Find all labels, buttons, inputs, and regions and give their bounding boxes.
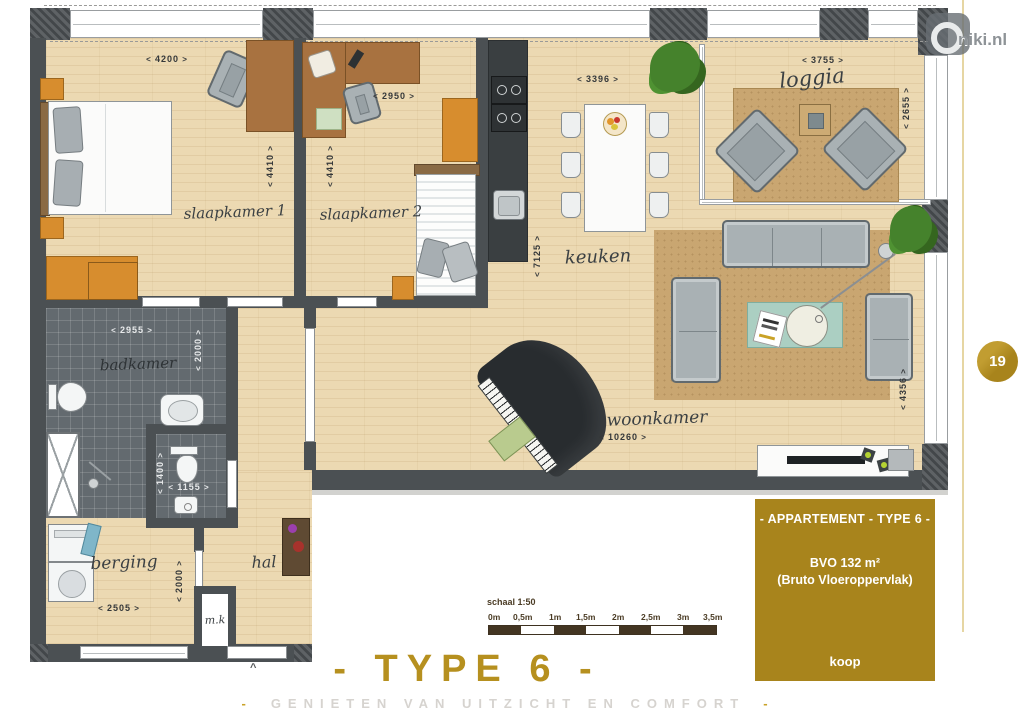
dryer bbox=[48, 562, 94, 602]
info-box-tenure: koop bbox=[755, 654, 935, 669]
dim-sl1-height: 4410 bbox=[265, 145, 275, 187]
dim-sl2-width: 2950 bbox=[373, 91, 415, 101]
nightstand bbox=[392, 276, 414, 300]
door-badkamer bbox=[142, 297, 200, 307]
tagline: -GENIETEN VAN UITZICHT EN COMFORT- bbox=[208, 696, 808, 711]
drum-door bbox=[58, 570, 86, 598]
facade-dashed-line-top bbox=[44, 5, 936, 6]
label-keuken: keuken bbox=[564, 245, 631, 268]
wall-pier-top-1 bbox=[263, 8, 313, 40]
window-top-loggia-1 bbox=[707, 10, 820, 38]
sofa-left bbox=[671, 277, 721, 383]
scale-bar: schaal 1:50 0m 0,5m 1m 1,5m 2m 2,5m 3m 3… bbox=[487, 597, 727, 637]
green-pad bbox=[316, 108, 342, 130]
scale-segment bbox=[489, 626, 521, 634]
scale-tick: 1,5m bbox=[576, 612, 595, 622]
round-coffee-table bbox=[786, 305, 828, 347]
kitchen-cooktop bbox=[491, 104, 527, 132]
scale-tick: 2,5m bbox=[641, 612, 660, 622]
scale-tick: 3,5m bbox=[703, 612, 722, 622]
window-top-slaapkamer2-keuken bbox=[313, 10, 650, 38]
window-right-woonkamer bbox=[924, 252, 948, 444]
scale-tick: 0m bbox=[488, 612, 500, 622]
cushion-divider bbox=[679, 331, 717, 332]
cushion-divider bbox=[772, 228, 773, 266]
arc-lamp-base bbox=[878, 243, 894, 259]
window-right-loggia bbox=[924, 55, 948, 200]
dim-badkamer-height: 2000 bbox=[193, 329, 203, 371]
niki-logo-text: niki.nl bbox=[958, 30, 1007, 50]
nightstand bbox=[40, 78, 64, 100]
dim-sl1-width: 4200 bbox=[146, 54, 188, 64]
tagline-text: GENIETEN VAN UITZICHT EN COMFORT bbox=[271, 696, 745, 711]
scale-bar-ticks: 0m 0,5m 1m 1,5m 2m 2,5m 3m 3,5m bbox=[487, 612, 727, 622]
pillow bbox=[52, 159, 83, 207]
entrance-door bbox=[227, 646, 287, 659]
basin bbox=[168, 400, 198, 422]
dim-loggia-width: 3755 bbox=[802, 55, 844, 65]
speaker-cone bbox=[864, 451, 872, 459]
burner-icon bbox=[497, 113, 507, 123]
dim-woonkamer-width: 10260 bbox=[599, 432, 647, 442]
info-box-title: - APPARTEMENT - TYPE 6 - bbox=[755, 512, 935, 526]
table-tray bbox=[808, 113, 824, 129]
small-basin bbox=[174, 496, 198, 514]
dining-chair bbox=[561, 152, 581, 178]
apartment-info-box: - APPARTEMENT - TYPE 6 - BVO 132 m² (Bru… bbox=[755, 499, 935, 681]
dim-berging-width: 2505 bbox=[98, 603, 140, 613]
tagline-dash-left: - bbox=[241, 696, 252, 711]
wall-bottom-leg-corner-left bbox=[30, 644, 48, 662]
kitchen-counter bbox=[488, 40, 528, 262]
brochure-page: ^ slaapkamer 1 slaapkamer 2 keuken loggi… bbox=[0, 0, 1024, 723]
dining-chair bbox=[649, 152, 669, 178]
scale-segment bbox=[651, 626, 683, 634]
door-slaapkamer2 bbox=[337, 297, 377, 307]
shower-head bbox=[88, 478, 99, 489]
label-meterkast: m.k bbox=[204, 613, 225, 627]
scale-tick: 3m bbox=[677, 612, 689, 622]
speaker-cone bbox=[880, 461, 887, 468]
door-berging bbox=[195, 550, 203, 588]
desk bbox=[246, 40, 294, 132]
dim-keuken-height: 7125 bbox=[532, 235, 542, 277]
basin-dot bbox=[184, 503, 192, 511]
info-box-area: BVO 132 m² bbox=[755, 556, 935, 570]
wardrobe-cabinet bbox=[442, 98, 478, 162]
kitchen-oven bbox=[491, 76, 527, 104]
wall-pier-top-left-corner bbox=[30, 8, 70, 40]
dining-chair bbox=[649, 112, 669, 138]
coat bbox=[288, 524, 297, 533]
duvet-fold bbox=[105, 104, 106, 212]
scale-tick: 1m bbox=[549, 612, 561, 622]
dim-loggia-height: 2655 bbox=[901, 87, 911, 129]
kitchen-sink bbox=[493, 190, 525, 220]
dim-sl2-height: 4410 bbox=[325, 145, 335, 187]
wall-hal-woonkamer-top bbox=[304, 308, 316, 328]
coat-rack bbox=[282, 518, 310, 576]
scale-segment bbox=[554, 626, 586, 634]
label-berging: berging bbox=[90, 552, 158, 574]
wall-hal-woonkamer-bottom bbox=[304, 442, 316, 470]
door-slaapkamer1 bbox=[227, 297, 283, 307]
loggia-side-table bbox=[799, 104, 831, 136]
scale-bar-ruler bbox=[488, 625, 717, 635]
dim-wc-width: 1155 bbox=[168, 482, 209, 492]
magazine-print bbox=[761, 324, 777, 331]
media-box bbox=[888, 449, 914, 471]
scale-tick: 0,5m bbox=[513, 612, 532, 622]
fruit-bowl bbox=[603, 112, 627, 136]
info-box-area-note: (Bruto Vloeroppervlak) bbox=[755, 573, 935, 587]
coat bbox=[293, 541, 304, 552]
wall-pier-right-bottom bbox=[922, 444, 948, 490]
toilet-cistern bbox=[48, 384, 57, 410]
toilet-cistern bbox=[170, 446, 198, 455]
label-badkamer: badkamer bbox=[99, 354, 176, 375]
piano-body bbox=[473, 318, 628, 480]
wall-badkamer-right bbox=[226, 308, 238, 436]
door-wc bbox=[227, 460, 237, 508]
table-dot bbox=[815, 315, 823, 323]
scale-segment bbox=[683, 626, 715, 634]
washbasin bbox=[160, 394, 204, 426]
grand-piano bbox=[488, 328, 608, 478]
dim-badkamer-width: 2955 bbox=[111, 325, 153, 335]
nightstand bbox=[40, 217, 64, 239]
wall-pier-top-2 bbox=[650, 8, 707, 40]
label-slaapkamer1: slaapkamer 1 bbox=[183, 201, 286, 223]
burner-icon bbox=[511, 85, 521, 95]
entrance-marker: ^ bbox=[250, 662, 256, 674]
dim-berging-height: 2000 bbox=[174, 560, 184, 602]
type-title: - TYPE 6 - bbox=[317, 648, 617, 691]
scale-bar-label: schaal 1:50 bbox=[487, 597, 727, 607]
dim-keuken-width: 3396 bbox=[577, 74, 619, 84]
dim-woonkamer-height: 4356 bbox=[898, 368, 908, 410]
cushion-divider bbox=[873, 339, 909, 340]
dining-chair bbox=[649, 192, 669, 218]
fruit bbox=[614, 117, 620, 123]
cushion-divider bbox=[821, 228, 822, 266]
wall-bottom-leg-corner-right bbox=[294, 644, 312, 662]
dining-chair bbox=[561, 112, 581, 138]
burner-icon bbox=[497, 85, 507, 95]
gold-divider-line bbox=[962, 0, 964, 632]
scale-segment bbox=[586, 626, 618, 634]
wall-pier-top-3 bbox=[820, 8, 868, 40]
sink-basin bbox=[498, 196, 520, 216]
sofa-three-seat bbox=[722, 220, 870, 268]
wall-woonkamer-bottom-shadow bbox=[312, 490, 948, 495]
window-berging bbox=[80, 646, 188, 659]
wall-berging-hal bbox=[194, 528, 204, 552]
bedroom-bench bbox=[88, 262, 138, 300]
label-hal: hal bbox=[251, 552, 277, 572]
door-hal-woonkamer bbox=[305, 328, 315, 442]
magazine-print bbox=[759, 334, 775, 341]
page-number-badge: 19 bbox=[977, 341, 1018, 382]
tagline-dash-right: - bbox=[763, 696, 774, 711]
fruit bbox=[611, 124, 618, 130]
label-slaapkamer2: slaapkamer 2 bbox=[319, 202, 422, 224]
glass-loggia-left bbox=[699, 44, 705, 202]
window-top-slaapkamer1 bbox=[70, 10, 263, 38]
tv-screen bbox=[787, 456, 865, 464]
burner-icon bbox=[511, 113, 521, 123]
scale-segment bbox=[521, 626, 553, 634]
coat bbox=[289, 559, 298, 568]
pillow bbox=[52, 106, 83, 154]
scale-tick: 2m bbox=[612, 612, 624, 622]
dim-wc-height: 1400 bbox=[155, 452, 165, 494]
dining-chair bbox=[561, 192, 581, 218]
shower-tray bbox=[46, 432, 80, 518]
window-top-loggia-2 bbox=[868, 10, 918, 38]
scale-segment bbox=[619, 626, 651, 634]
label-woonkamer: woonkamer bbox=[606, 407, 707, 431]
wall-wc-bottom bbox=[146, 518, 236, 528]
